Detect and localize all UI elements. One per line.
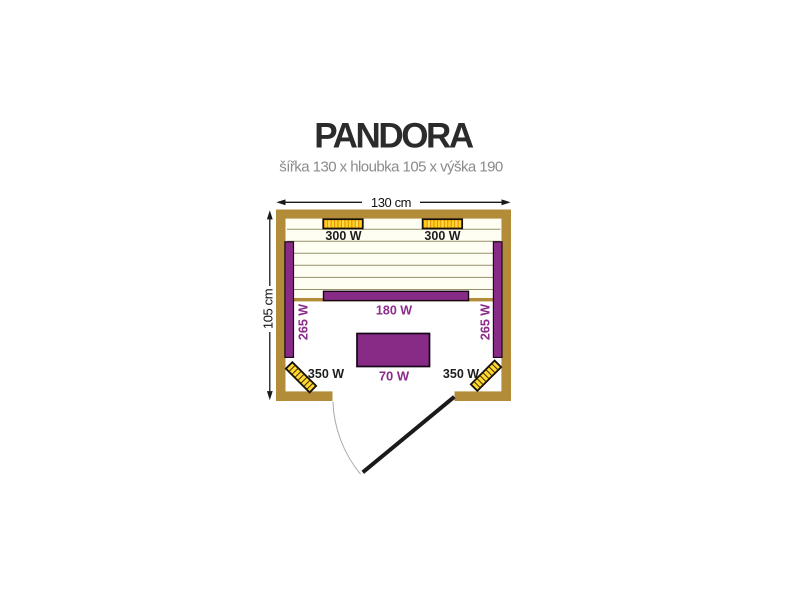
svg-text:180 W: 180 W: [376, 304, 412, 318]
svg-text:265 W: 265 W: [479, 304, 493, 340]
svg-text:130 cm: 130 cm: [371, 195, 411, 210]
svg-text:265 W: 265 W: [297, 304, 311, 340]
svg-text:PANDORA: PANDORA: [314, 117, 474, 156]
svg-text:300 W: 300 W: [325, 229, 361, 243]
svg-text:300 W: 300 W: [424, 229, 460, 243]
svg-text:350 W: 350 W: [443, 367, 479, 381]
svg-text:70 W: 70 W: [379, 369, 410, 384]
svg-text:šířka 130 x hloubka 105 x výšk: šířka 130 x hloubka 105 x výška 190: [279, 159, 503, 176]
svg-text:350 W: 350 W: [308, 367, 344, 381]
svg-text:105 cm: 105 cm: [261, 289, 276, 329]
